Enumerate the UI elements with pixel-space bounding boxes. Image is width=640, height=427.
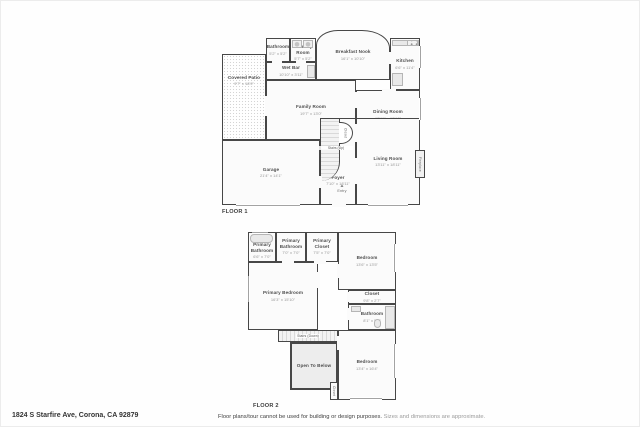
door-opening <box>282 261 294 264</box>
room-dims: 9'8" x 2'7" <box>363 298 381 303</box>
entry-door-opening <box>332 204 346 207</box>
stove-icon <box>407 40 418 46</box>
room-bathroom-1: Bathroom 5'2" x 5'2" <box>266 38 290 62</box>
bathtub-icon <box>250 234 273 243</box>
room-bathroom-small: Bathroom 8'1" x 5'8" <box>348 304 396 330</box>
room-dims: 10'10" x 3'11" <box>279 72 303 77</box>
room-dims: 13'6" x 13'5" <box>356 262 378 267</box>
closet-label: Closet <box>344 128 348 138</box>
room-dims: 16'3" x 15'10" <box>271 297 295 302</box>
floor1-label: FLOOR 1 <box>222 209 248 215</box>
room-dims: 19'7" x 13'0" <box>300 111 322 116</box>
room-bedroom-bottom: Bedroom 13'4" x 16'4" <box>338 330 396 400</box>
room-living-room: Living Room 13'11" x 18'11" <box>356 118 420 205</box>
patio-door-opening <box>265 96 268 116</box>
door-opening <box>347 308 350 320</box>
under-stair-closet: Closet <box>339 122 353 144</box>
room-name: Bedroom <box>357 255 378 261</box>
room-dims: 5'2" x 5'2" <box>269 51 287 56</box>
window <box>419 46 422 68</box>
stairs-down-label: Stairs (Down) <box>296 334 320 338</box>
room-name: Bathroom <box>361 311 384 317</box>
room-dims: 7'5" x 7'0" <box>313 250 331 255</box>
door-opening <box>355 92 358 108</box>
room-closet-mid: Closet 9'8" x 2'7" <box>348 290 396 304</box>
room-dims: 6'6" x 11'4" <box>395 65 414 70</box>
disclaimer-main: Floor plans/tour cannot be used for buil… <box>218 414 382 420</box>
garage-door <box>236 204 300 207</box>
window <box>350 397 382 400</box>
room-primary-bathroom-1: Primary Bathroom 6'6" x 7'0" <box>248 232 276 262</box>
window <box>393 344 396 378</box>
room-dims: 6'6" x 7'0" <box>253 254 271 259</box>
floorplan-document: Covered Patio 9'7" x 18'9" Bathroom 5'2"… <box>0 0 640 427</box>
room-name: Primary Bathroom <box>249 242 275 253</box>
room-kitchen: Kitchen 6'6" x 11'4" <box>390 38 420 90</box>
door-opening <box>317 272 320 288</box>
door-opening <box>355 158 358 184</box>
door-opening <box>389 52 392 64</box>
stairs-down: Stairs (Down) <box>278 330 338 342</box>
dryer-icon <box>303 40 313 48</box>
room-name: Covered Patio <box>228 75 260 81</box>
room-primary-bathroom-2: Primary Bathroom 7'0" x 7'0" <box>276 232 306 262</box>
fireplace: Fireplace <box>415 150 425 178</box>
door-opening <box>296 61 306 64</box>
bar-sink-icon <box>307 65 315 78</box>
room-primary-closet: Primary Closet 7'5" x 7'0" <box>306 232 338 262</box>
door-opening <box>355 124 358 142</box>
fireplace-label: Fireplace <box>418 157 422 172</box>
door-opening <box>337 336 340 350</box>
room-name: Dining Room <box>373 109 403 115</box>
floor2-plan: Primary Bathroom 6'6" x 7'0" Primary Bat… <box>248 232 396 400</box>
window <box>393 244 396 272</box>
sink-icon <box>351 306 361 312</box>
room-bedroom-top: Bedroom 13'6" x 13'5" <box>338 232 396 290</box>
entry-label: Entry <box>337 189 346 194</box>
room-name: Bedroom <box>357 359 378 365</box>
room-dims: 9'7" x 18'9" <box>234 81 254 86</box>
room-name: Garage <box>263 167 279 173</box>
garage-door-opening <box>319 176 322 188</box>
window <box>368 204 408 207</box>
floor1-plan: Covered Patio 9'7" x 18'9" Bathroom 5'2"… <box>222 30 420 205</box>
room-name: Wet Bar <box>282 65 300 71</box>
door-opening <box>337 264 340 278</box>
room-primary-bedroom: Primary Bedroom 16'3" x 15'10" <box>248 262 318 330</box>
washer-icon <box>292 40 302 48</box>
room-closet-small: Closet <box>330 382 338 400</box>
closet-label: Closet <box>332 386 336 396</box>
room-name: Living Room <box>374 156 403 162</box>
fridge-icon <box>392 73 403 86</box>
room-garage: Garage 21'4" x 14'1" <box>222 140 320 205</box>
window <box>247 276 250 302</box>
room-name: Closet <box>365 291 380 297</box>
door-opening <box>272 61 282 64</box>
room-wet-bar: Wet Bar 10'10" x 3'11" <box>266 62 316 80</box>
room-name: Kitchen <box>396 58 414 64</box>
stairs-up <box>321 119 340 181</box>
door-opening <box>347 292 350 302</box>
room-covered-patio: Covered Patio 9'7" x 18'9" <box>222 54 266 140</box>
stairs-up-label: Stairs (Up) <box>319 146 353 150</box>
disclaimer-note: Sizes and dimensions are approximate. <box>384 414 486 420</box>
footer-disclaimer: Floor plans/tour cannot be used for buil… <box>218 414 485 420</box>
room-breakfast-nook: Breakfast Nook 16'1" x 10'10" <box>316 30 390 80</box>
floor2-label: FLOOR 2 <box>253 403 279 409</box>
shower-icon <box>385 306 395 329</box>
room-name: Open To Below <box>297 363 331 369</box>
room-name: Primary Bedroom <box>263 290 303 296</box>
window <box>419 98 422 120</box>
room-dims: 7'0" x 7'0" <box>282 250 300 255</box>
room-name: Primary Bathroom <box>277 238 305 249</box>
room-dims: 13'11" x 18'11" <box>375 162 401 167</box>
room-name: Breakfast Nook <box>335 49 370 55</box>
footer-address: 1824 S Starfire Ave, Corona, CA 92879 <box>12 412 138 419</box>
room-name: Family Room <box>296 104 326 110</box>
door-opening <box>314 261 326 264</box>
entry-marker: ▲ Entry <box>327 184 357 194</box>
door-opening <box>382 89 396 92</box>
toilet-icon <box>374 319 381 328</box>
room-laundry: Laundry Room 5'7" x 5'2" <box>290 38 316 62</box>
room-dims: 21'4" x 14'1" <box>260 173 282 178</box>
room-dims: 13'4" x 16'4" <box>356 366 378 371</box>
room-name: Bathroom <box>267 44 290 50</box>
window <box>252 231 268 234</box>
room-dims: 16'1" x 10'10" <box>341 56 365 61</box>
room-name: Primary Closet <box>307 238 337 249</box>
